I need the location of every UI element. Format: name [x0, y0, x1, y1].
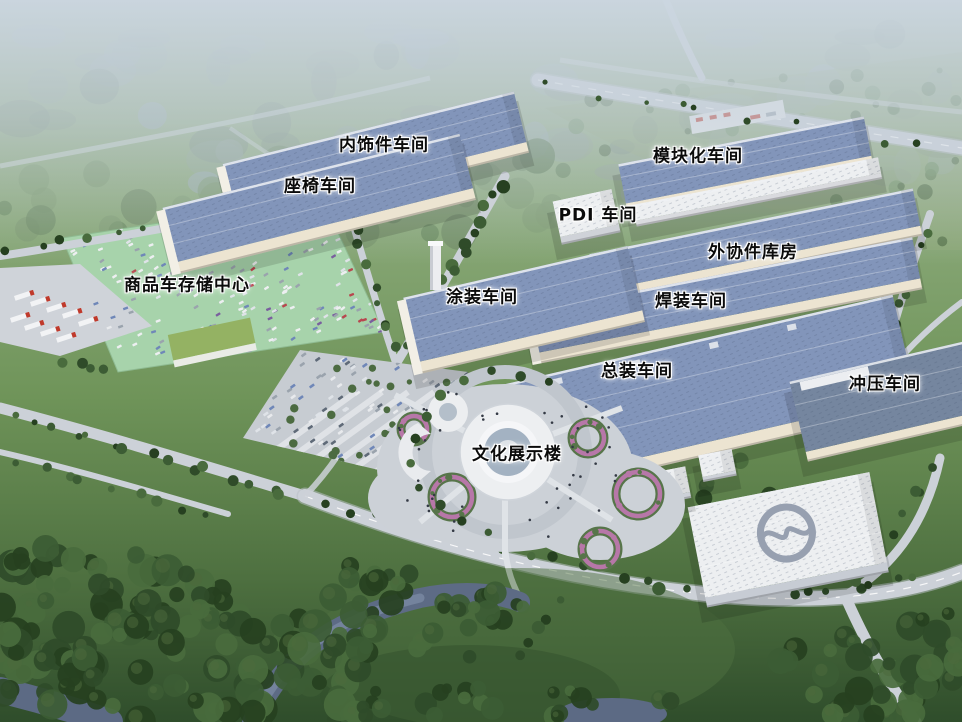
aerial-rendering: 内饰件车间 座椅车间 模块化车间 PDI 车间 外协件库房 商品车存储中心 涂装… — [0, 0, 962, 722]
scene-svg — [0, 0, 962, 722]
chimney — [428, 241, 443, 290]
culture-exhibition-hall — [460, 404, 556, 500]
